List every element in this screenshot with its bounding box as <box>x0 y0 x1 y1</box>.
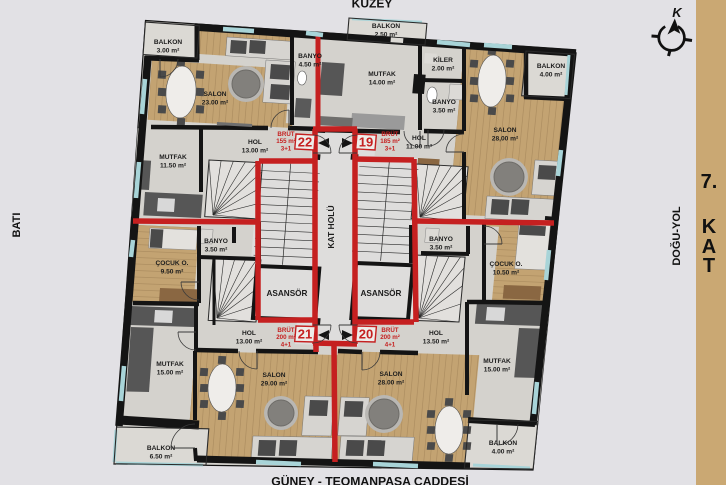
svg-text:HOL: HOL <box>429 330 443 337</box>
svg-text:200 m²: 200 m² <box>380 334 400 341</box>
svg-text:13.00 m²: 13.00 m² <box>242 147 269 154</box>
svg-text:10.50 m²: 10.50 m² <box>493 269 520 276</box>
svg-text:GÜNEY - TEOMANPAŞA CADDESİ: GÜNEY - TEOMANPAŞA CADDESİ <box>271 474 469 485</box>
svg-text:BALKON: BALKON <box>537 63 565 70</box>
svg-text:185 m²: 185 m² <box>380 138 400 145</box>
svg-text:200 m²: 200 m² <box>276 334 296 341</box>
svg-text:4.00 m²: 4.00 m² <box>540 71 564 78</box>
svg-text:11.50 m²: 11.50 m² <box>160 162 187 169</box>
svg-text:19: 19 <box>359 135 373 150</box>
svg-text:BANYO: BANYO <box>429 236 453 243</box>
svg-text:15.00 m²: 15.00 m² <box>157 369 184 376</box>
svg-text:4+1: 4+1 <box>281 341 292 348</box>
svg-text:DOĞU-YOL: DOĞU-YOL <box>670 206 683 266</box>
svg-text:3+1: 3+1 <box>281 145 292 152</box>
svg-text:BALKON: BALKON <box>154 39 182 46</box>
svg-text:HOL: HOL <box>242 330 256 337</box>
svg-text:7.: 7. <box>701 171 718 193</box>
svg-text:2.00 m²: 2.00 m² <box>432 65 456 72</box>
svg-text:21: 21 <box>298 327 312 342</box>
svg-text:29.00 m²: 29.00 m² <box>261 380 288 387</box>
svg-text:BRÜT: BRÜT <box>277 131 294 138</box>
svg-text:3.00 m²: 3.00 m² <box>157 47 181 54</box>
svg-text:BRÜT: BRÜT <box>381 131 398 138</box>
svg-text:22: 22 <box>298 135 312 150</box>
svg-text:ASANSÖR: ASANSÖR <box>267 288 308 298</box>
svg-text:KUZEY: KUZEY <box>352 0 393 11</box>
svg-text:3.50 m²: 3.50 m² <box>430 244 454 251</box>
svg-text:BALKON: BALKON <box>489 440 517 447</box>
svg-text:BANYO: BANYO <box>432 99 456 106</box>
svg-text:T: T <box>703 255 715 277</box>
svg-text:BRÜT: BRÜT <box>381 327 398 334</box>
svg-text:BATI: BATI <box>11 213 23 238</box>
svg-text:6.50 m²: 6.50 m² <box>150 453 174 460</box>
svg-text:ASANSÖR: ASANSÖR <box>361 288 402 298</box>
svg-text:23.00 m²: 23.00 m² <box>202 99 229 106</box>
svg-text:3.50 m²: 3.50 m² <box>205 246 229 253</box>
svg-text:4.00 m²: 4.00 m² <box>492 448 516 455</box>
svg-text:MUTFAK: MUTFAK <box>159 154 187 161</box>
svg-text:HOL: HOL <box>248 139 262 146</box>
svg-text:SALON: SALON <box>379 371 402 378</box>
svg-text:KİLER: KİLER <box>433 56 453 64</box>
svg-text:SALON: SALON <box>493 127 516 134</box>
svg-text:28.00 m²: 28.00 m² <box>378 379 405 386</box>
svg-text:4+1: 4+1 <box>385 341 396 348</box>
svg-text:MUTFAK: MUTFAK <box>368 71 396 78</box>
svg-text:BRÜT: BRÜT <box>277 327 294 334</box>
svg-text:28,00 m²: 28,00 m² <box>492 135 519 142</box>
svg-text:BANYO: BANYO <box>298 53 322 60</box>
svg-text:20: 20 <box>359 327 373 342</box>
svg-text:14.00 m²: 14.00 m² <box>369 79 396 86</box>
svg-text:2.50 m²: 2.50 m² <box>375 31 399 38</box>
svg-text:KAT HOLÜ: KAT HOLÜ <box>326 205 336 248</box>
svg-text:13.50 m²: 13.50 m² <box>423 338 450 345</box>
svg-text:SALON: SALON <box>262 372 285 379</box>
svg-text:3+1: 3+1 <box>385 145 396 152</box>
svg-text:SALON: SALON <box>203 91 226 98</box>
svg-text:HOL: HOL <box>412 135 426 142</box>
svg-text:155 m²: 155 m² <box>276 138 296 145</box>
svg-text:BANYO: BANYO <box>204 238 228 245</box>
svg-text:13.00 m²: 13.00 m² <box>236 338 263 345</box>
svg-text:3.50 m²: 3.50 m² <box>433 107 457 114</box>
svg-text:MUTFAK: MUTFAK <box>156 361 184 368</box>
svg-text:K: K <box>702 216 717 238</box>
svg-text:ÇOCUK O.: ÇOCUK O. <box>156 260 189 267</box>
svg-text:K: K <box>672 5 683 20</box>
svg-text:MUTFAK: MUTFAK <box>483 358 511 365</box>
svg-text:9.50 m²: 9.50 m² <box>161 268 185 275</box>
svg-text:BALKON: BALKON <box>372 23 400 30</box>
svg-text:15.00 m²: 15.00 m² <box>484 366 511 373</box>
svg-text:4.50 m²: 4.50 m² <box>299 61 323 68</box>
svg-text:ÇOCUK O.: ÇOCUK O. <box>490 261 523 268</box>
